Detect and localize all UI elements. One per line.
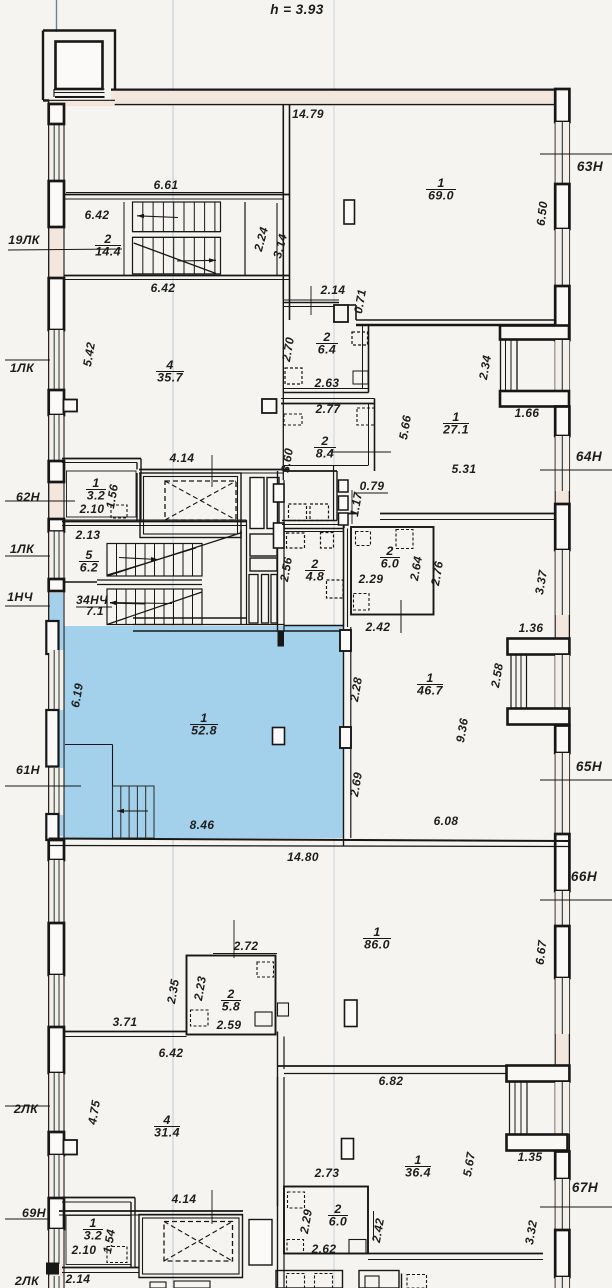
svg-text:8.4: 8.4 — [316, 447, 334, 461]
svg-text:65Н: 65Н — [576, 759, 603, 774]
svg-text:6.42: 6.42 — [159, 1046, 184, 1060]
svg-text:2.59: 2.59 — [216, 1018, 242, 1032]
svg-text:64Н: 64Н — [576, 449, 603, 464]
svg-text:52.8: 52.8 — [191, 724, 217, 738]
svg-text:3.71: 3.71 — [113, 1015, 138, 1029]
svg-text:3.2: 3.2 — [84, 1229, 102, 1243]
svg-text:0.79: 0.79 — [360, 479, 385, 493]
svg-text:4.14: 4.14 — [171, 1192, 197, 1206]
svg-text:4.14: 4.14 — [169, 451, 195, 465]
svg-text:6.08: 6.08 — [434, 814, 459, 828]
svg-text:35.7: 35.7 — [157, 371, 183, 385]
svg-text:2.13: 2.13 — [75, 528, 101, 542]
svg-text:2.14: 2.14 — [65, 1272, 91, 1286]
svg-text:36.4: 36.4 — [405, 1166, 431, 1180]
svg-text:1.66: 1.66 — [515, 406, 540, 420]
svg-text:6.4: 6.4 — [318, 343, 336, 357]
svg-text:2.63: 2.63 — [314, 376, 340, 390]
svg-text:6.50: 6.50 — [534, 200, 551, 226]
svg-text:31.4: 31.4 — [154, 1126, 180, 1140]
svg-text:3.2: 3.2 — [87, 489, 105, 503]
svg-text:86.0: 86.0 — [364, 938, 390, 952]
svg-text:5.8: 5.8 — [222, 1000, 240, 1014]
svg-text:5.31: 5.31 — [452, 462, 477, 476]
svg-text:2.72: 2.72 — [233, 939, 259, 953]
svg-text:1ЛК: 1ЛК — [10, 361, 35, 375]
svg-text:14.80: 14.80 — [287, 850, 319, 864]
svg-text:2ЛК: 2ЛК — [14, 1274, 40, 1288]
svg-text:62Н: 62Н — [16, 490, 41, 504]
svg-text:69Н: 69Н — [22, 1206, 47, 1220]
svg-text:63Н: 63Н — [577, 159, 604, 174]
svg-text:27.1: 27.1 — [442, 423, 469, 437]
svg-text:1.36: 1.36 — [519, 621, 544, 635]
svg-text:2.42: 2.42 — [365, 620, 391, 634]
svg-text:1НЧ: 1НЧ — [7, 590, 33, 604]
svg-text:6.0: 6.0 — [329, 1215, 347, 1229]
svg-text:2.73: 2.73 — [314, 1166, 340, 1180]
svg-text:2ЛК: 2ЛК — [13, 1102, 39, 1116]
svg-text:4.8: 4.8 — [305, 570, 324, 584]
svg-text:66Н: 66Н — [571, 869, 598, 884]
svg-text:69.0: 69.0 — [428, 189, 454, 203]
svg-text:2.29: 2.29 — [358, 572, 384, 586]
svg-text:6.2: 6.2 — [80, 561, 98, 575]
svg-text:7.1: 7.1 — [86, 604, 104, 618]
svg-text:61Н: 61Н — [16, 763, 41, 777]
svg-text:14.79: 14.79 — [292, 107, 324, 121]
svg-text:2.10: 2.10 — [79, 502, 105, 516]
svg-text:19ЛК: 19ЛК — [8, 233, 40, 247]
svg-text:2.10: 2.10 — [71, 1243, 97, 1257]
svg-text:h = 3.93: h = 3.93 — [270, 2, 323, 17]
svg-text:46.7: 46.7 — [416, 684, 443, 698]
svg-text:2.77: 2.77 — [315, 402, 342, 416]
svg-text:2.62: 2.62 — [311, 1242, 337, 1256]
svg-text:6.61: 6.61 — [154, 178, 179, 192]
svg-text:8.46: 8.46 — [190, 818, 215, 832]
svg-text:2.14: 2.14 — [320, 283, 346, 297]
svg-text:6.42: 6.42 — [151, 281, 176, 295]
svg-text:1ЛК: 1ЛК — [10, 542, 35, 556]
svg-text:6.0: 6.0 — [381, 557, 399, 571]
svg-text:6.82: 6.82 — [379, 1074, 404, 1088]
svg-text:67Н: 67Н — [572, 1180, 599, 1195]
svg-text:6.42: 6.42 — [85, 208, 110, 222]
svg-text:1.35: 1.35 — [518, 1150, 543, 1164]
svg-text:14.4: 14.4 — [95, 245, 121, 259]
